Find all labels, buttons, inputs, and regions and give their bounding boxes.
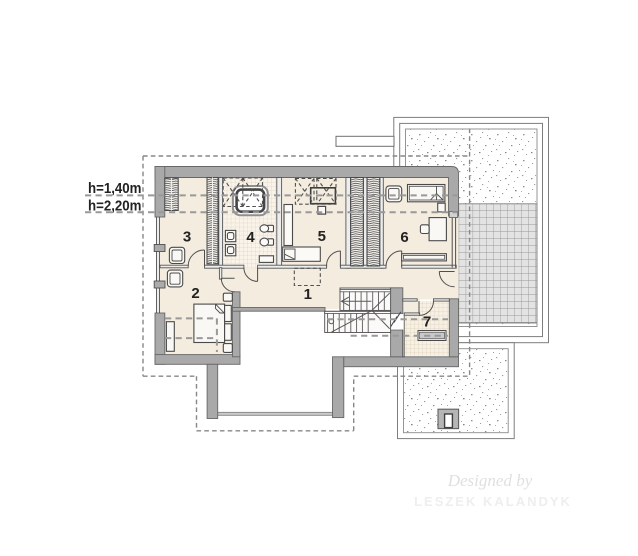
svg-text:3: 3 (183, 229, 191, 246)
svg-text:7: 7 (423, 313, 431, 330)
svg-text:6: 6 (400, 229, 408, 246)
svg-text:h=2,20m: h=2,20m (88, 197, 142, 214)
svg-text:2: 2 (191, 285, 199, 302)
svg-text:4: 4 (246, 229, 255, 246)
svg-text:LESZEK KALANDYK: LESZEK KALANDYK (414, 494, 572, 509)
svg-text:Designed by: Designed by (447, 471, 533, 490)
svg-text:5: 5 (318, 228, 326, 245)
svg-text:h=1,40m: h=1,40m (88, 180, 142, 197)
svg-text:1: 1 (304, 286, 312, 303)
